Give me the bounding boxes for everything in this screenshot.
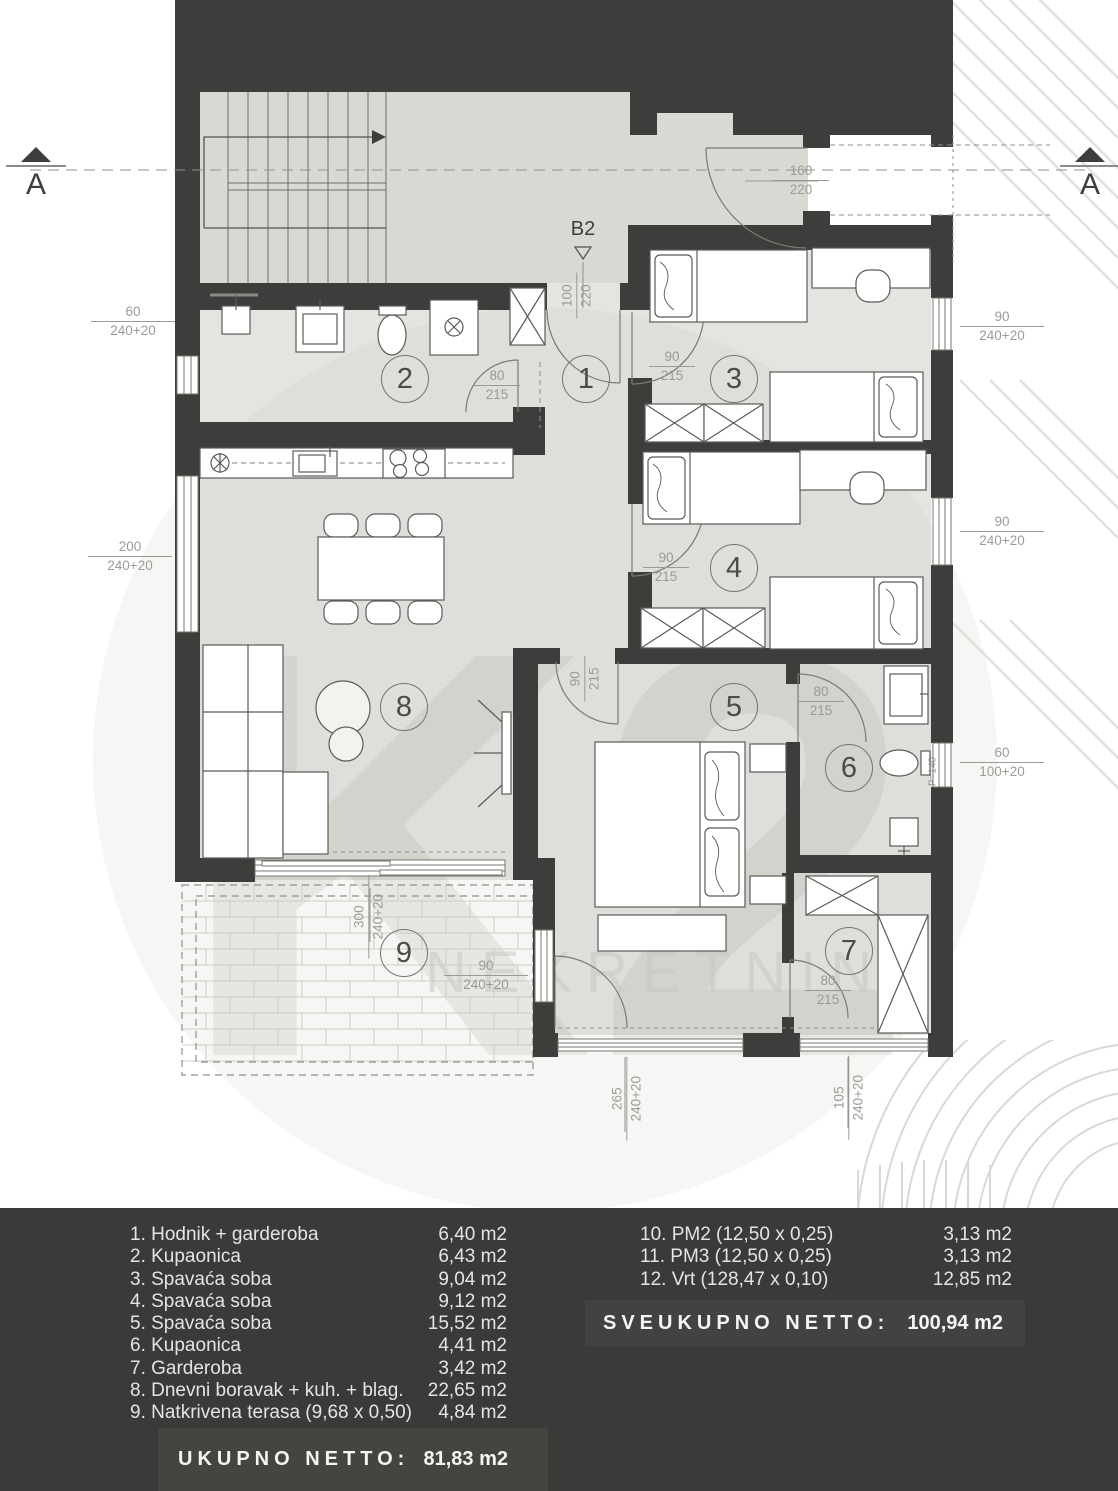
total-sveukupno-netto: SVEUKUPNO NETTO: 100,94 m2	[585, 1300, 1025, 1346]
door-dim-bath2: 80 215	[474, 368, 520, 403]
legend-row: 3. Spavaća soba9,04 m2	[130, 1269, 507, 1291]
door-dim-room3: 90 215	[649, 349, 695, 384]
window-dim-bottom-room5: 265 240+20	[609, 1057, 644, 1141]
room-number-8: 8	[380, 683, 428, 731]
window-dim-terrace-side: 90 240+20	[444, 958, 528, 993]
room7-wardrobe-tall	[878, 915, 928, 1033]
door-dim-entry-outer: 160 220	[773, 163, 829, 198]
room4-wardrobe	[641, 608, 765, 648]
fridge-symbol	[211, 453, 229, 473]
section-letter: A	[0, 168, 72, 202]
room3-bed-1	[650, 250, 807, 322]
washing-machine	[222, 306, 250, 334]
room-number-2: 2	[381, 355, 429, 403]
legend-row: 6. Kupaonica4,41 m2	[130, 1335, 507, 1357]
window-dim-terrace-front: 300 240+20	[351, 875, 386, 959]
parapet-label: P=140	[928, 752, 939, 792]
unit-marker-triangle-icon	[574, 246, 592, 260]
unit-marker-b2: B2	[553, 218, 613, 241]
window-dim-room4: 90 240+20	[960, 514, 1044, 549]
window-dim-left-large: 200 240+20	[88, 539, 172, 574]
legend-row: 1. Hodnik + garderoba6,40 m2	[130, 1224, 507, 1246]
unit-label: B2	[553, 218, 613, 241]
room5-nightstand-1	[750, 744, 786, 772]
legend-right-column: 10. PM2 (12,50 x 0,25)3,13 m2 11. PM3 (1…	[610, 1224, 1012, 1291]
floorplan-drawing: K2 NEKRETNINE	[0, 0, 1118, 1208]
coffee-table-small	[329, 727, 363, 761]
door-dim-room7: 80 215	[805, 973, 851, 1008]
section-letter: A	[1054, 168, 1118, 202]
dining-table	[318, 537, 444, 600]
legend-row: 2. Kupaonica6,43 m2	[130, 1246, 507, 1268]
room-number-6: 6	[825, 744, 873, 792]
window-dim-room3: 90 240+20	[960, 309, 1044, 344]
section-arrow-icon	[1075, 147, 1105, 162]
room-number-4: 4	[710, 544, 758, 592]
room-number-7: 7	[825, 927, 873, 975]
legend-row: 9. Natkrivena terasa (9,68 x 0,50)4,84 m…	[130, 1402, 507, 1424]
section-marker-right: A	[1054, 147, 1118, 202]
door-dim-entry-unit: 100 220	[559, 273, 594, 319]
room5-dresser	[598, 915, 726, 951]
bath6-sink	[884, 666, 928, 724]
door-dim-bath6: 80 215	[798, 684, 844, 719]
bath6-toilet	[880, 750, 930, 776]
room-number-5: 5	[710, 683, 758, 731]
floorplan-page: K2 NEKRETNINE	[0, 0, 1118, 1491]
room-number-9: 9	[380, 929, 428, 977]
room4-bed-1	[643, 452, 800, 524]
window-dim-bottom-room7: 105 240+20	[831, 1056, 866, 1140]
shaft	[510, 288, 545, 345]
door-dim-room5: 90 215	[567, 656, 602, 702]
section-arrow-icon	[21, 147, 51, 162]
section-marker-left: A	[0, 147, 72, 202]
legend-row: 5. Spavaća soba15,52 m2	[130, 1313, 507, 1335]
bath2-toilet	[378, 306, 406, 355]
legend-row: 4. Spavaća soba9,12 m2	[130, 1291, 507, 1313]
room4-bed-2	[770, 577, 923, 649]
legend-row: 8. Dnevni boravak + kuh. + blag.22,65 m2	[130, 1380, 507, 1402]
room7-wardrobe-top	[806, 876, 878, 915]
window-dim-bath6: 60 100+20	[960, 745, 1044, 780]
total-ukupno-netto: UKUPNO NETTO: 81,83 m2	[158, 1428, 548, 1491]
legend-row: 10. PM2 (12,50 x 0,25)3,13 m2	[610, 1224, 1012, 1246]
room5-bed	[595, 742, 745, 907]
legend-row: 12. Vrt (128,47 x 0,10)12,85 m2	[610, 1269, 1012, 1291]
room-number-1: 1	[562, 355, 610, 403]
hob	[383, 449, 445, 478]
room5-nightstand-2	[750, 876, 786, 904]
legend-footer: 1. Hodnik + garderoba6,40 m2 2. Kupaonic…	[0, 1208, 1118, 1491]
kitchen-sink	[293, 446, 337, 476]
window-dim-left-small: 60 240+20	[91, 304, 175, 339]
bath2-shower	[430, 300, 478, 355]
room3-wardrobe	[645, 404, 763, 442]
door-dim-room4: 90 215	[643, 550, 689, 585]
room-number-3: 3	[710, 355, 758, 403]
legend-row: 11. PM3 (12,50 x 0,25)3,13 m2	[610, 1246, 1012, 1268]
legend-row: 7. Garderoba3,42 m2	[130, 1358, 507, 1380]
legend-left-column: 1. Hodnik + garderoba6,40 m2 2. Kupaonic…	[130, 1224, 507, 1425]
room3-bed-2	[770, 372, 923, 442]
